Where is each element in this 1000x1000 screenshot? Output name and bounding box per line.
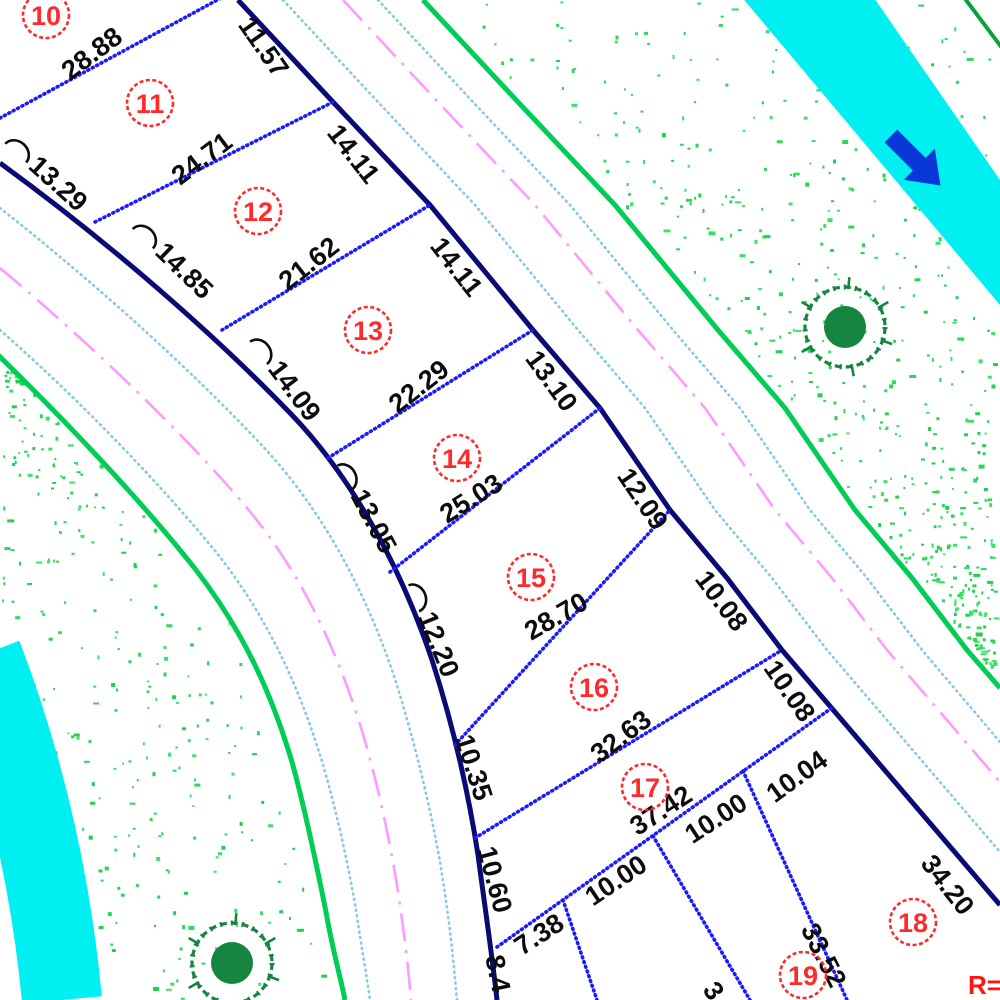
- lot-number: 13: [353, 316, 383, 346]
- plan-drawing: 28.8824.7121.6222.2925.0328.7032.6337.42…: [0, 0, 1000, 1000]
- radius-annotation: R=2: [968, 970, 1000, 1000]
- lot-number: 16: [579, 673, 609, 703]
- subdivision-plan-canvas: 28.8824.7121.6222.2925.0328.7032.6337.42…: [0, 0, 1000, 1000]
- lot-number: 10: [31, 1, 61, 31]
- lot-number: 11: [136, 89, 165, 119]
- lot-number: 14: [442, 444, 472, 474]
- lot-number: 17: [630, 773, 660, 803]
- lot-number: 18: [898, 908, 928, 938]
- lot-number: 19: [788, 961, 818, 991]
- lot-number: 12: [243, 197, 273, 227]
- lot-number: 15: [516, 563, 546, 593]
- radius-callout-text: R=2: [968, 970, 1000, 1000]
